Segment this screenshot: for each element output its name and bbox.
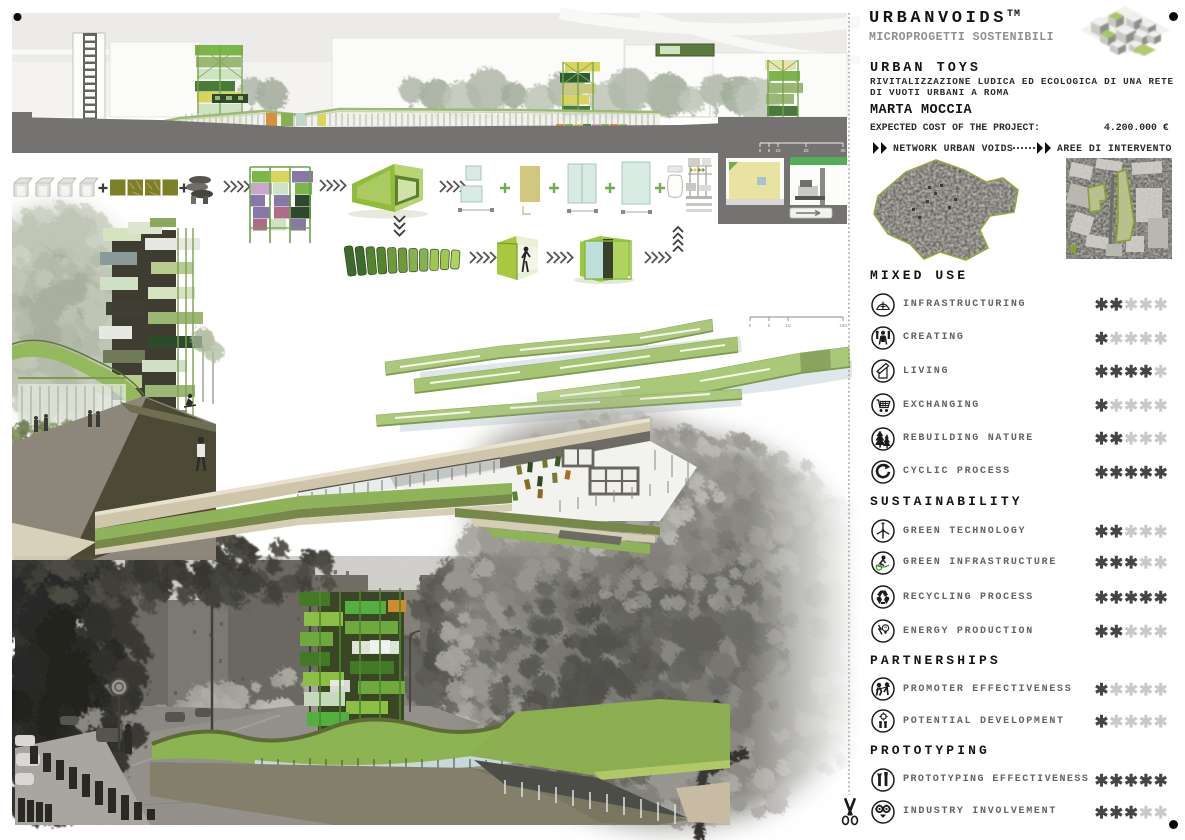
svg-text:10: 10 <box>785 323 791 328</box>
svg-text:5: 5 <box>768 323 771 328</box>
svg-text:0: 0 <box>749 323 752 328</box>
svg-text:20: 20 <box>803 148 809 153</box>
svg-text:10: 10 <box>775 148 781 153</box>
